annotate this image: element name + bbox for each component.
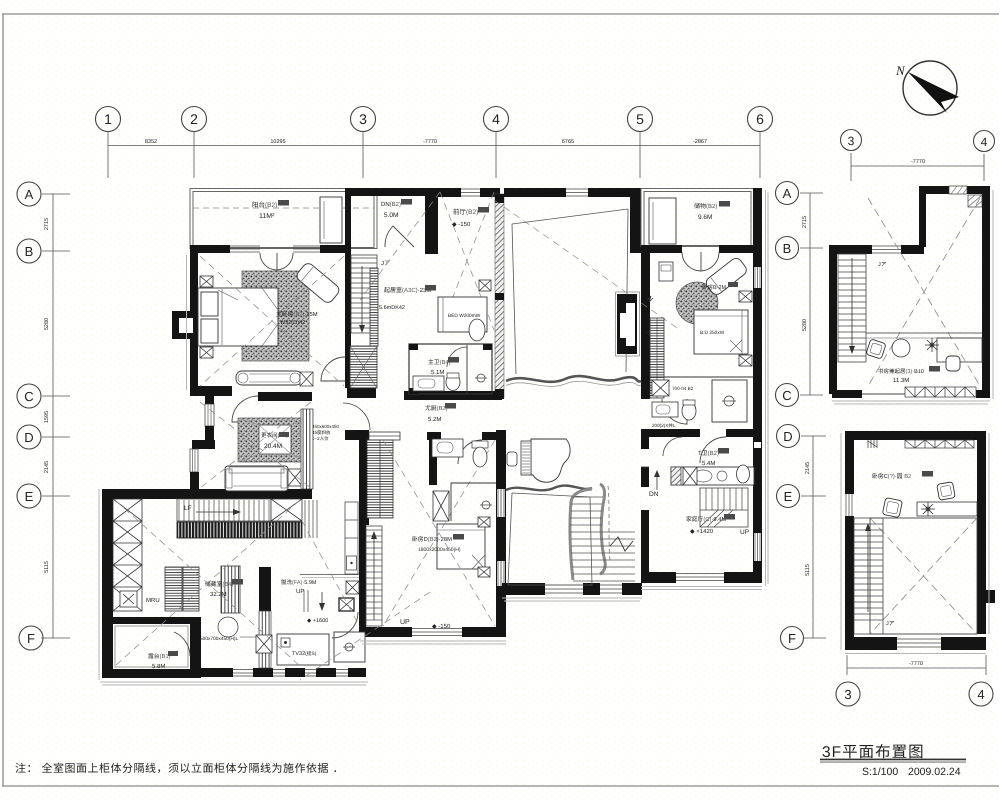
svg-text:-7770: -7770 [423, 139, 437, 145]
svg-text:3: 3 [844, 687, 851, 702]
svg-text:1800x2000x450(H): 1800x2000x450(H) [418, 547, 461, 553]
svg-text:书房兼起居(3)·B10: 书房兼起居(3)·B10 [878, 368, 924, 375]
svg-text:2009.02.24: 2009.02.24 [908, 766, 961, 778]
svg-text:5.4M: 5.4M [702, 460, 715, 467]
svg-text:B: B [25, 244, 34, 259]
svg-text:5.6mDK42: 5.6mDK42 [379, 305, 405, 311]
svg-text:卧房C(?)·园 B2: 卧房C(?)·园 B2 [872, 473, 911, 480]
svg-text:起居室(A3C)·23M: 起居室(A3C)·23M [384, 286, 431, 294]
svg-text:前厅(B2): 前厅(B2) [453, 208, 478, 216]
svg-text:UP: UP [296, 588, 304, 595]
svg-text:TV32(挂S): TV32(挂S) [292, 650, 317, 657]
svg-text:储物(B2): 储物(B2) [694, 202, 717, 210]
svg-text:尤厨(B2): 尤厨(B2) [425, 405, 448, 412]
svg-text:阳台(B2): 阳台(B2) [252, 201, 277, 209]
svg-text:-2867: -2867 [693, 139, 707, 145]
svg-text:5.1M: 5.1M [431, 369, 444, 376]
svg-text:盥洗(FA)·5.9M: 盥洗(FA)·5.9M [281, 579, 317, 586]
svg-text:8352: 8352 [145, 139, 157, 145]
svg-text:露台(B1): 露台(B1) [148, 653, 171, 660]
svg-text:2715: 2715 [802, 216, 808, 228]
svg-text:Jア: Jア [886, 621, 895, 627]
svg-text:1595: 1595 [44, 411, 50, 423]
svg-text:5.0M: 5.0M [384, 212, 398, 219]
svg-text:◆ -150: ◆ -150 [432, 623, 451, 630]
svg-text:9.6M: 9.6M [698, 214, 712, 221]
svg-text:5.8M: 5.8M [152, 663, 165, 670]
svg-text:DN(B2): DN(B2) [381, 201, 401, 208]
svg-text:3: 3 [359, 111, 367, 127]
svg-text:200(2)X井L: 200(2)X井L [652, 423, 676, 428]
svg-text:4: 4 [492, 111, 500, 127]
svg-text:UP: UP [740, 529, 749, 536]
svg-text:C: C [782, 388, 791, 403]
svg-text:E: E [25, 489, 34, 504]
svg-text:2145: 2145 [805, 462, 811, 474]
svg-text:卧房D(B2)·28M: 卧房D(B2)·28M [412, 536, 452, 543]
svg-text:11.3M: 11.3M [893, 377, 909, 384]
svg-text:A: A [25, 187, 34, 202]
svg-text:S:1/100: S:1/100 [862, 766, 898, 778]
svg-text:主卧房(B2)·15M: 主卧房(B2)·15M [276, 311, 318, 318]
svg-text:45度斜放: 45度斜放 [312, 430, 331, 435]
svg-text:◆ +1600: ◆ +1600 [307, 618, 328, 624]
svg-text:-7770: -7770 [911, 159, 925, 165]
svg-text:T卫(B2): T卫(B2) [698, 450, 719, 457]
svg-text:2: 2 [190, 111, 198, 127]
svg-text:6: 6 [756, 111, 764, 127]
svg-text:◆ -150: ◆ -150 [452, 221, 471, 228]
svg-text:5115: 5115 [44, 561, 50, 573]
svg-text:4: 4 [981, 135, 988, 149]
svg-text:5280: 5280 [802, 319, 808, 331]
svg-text:32.2M: 32.2M [210, 591, 227, 598]
svg-text:主卫(B4): 主卫(B4) [428, 359, 451, 366]
svg-text:1: 1 [104, 111, 112, 127]
svg-text:家庭厅(C)·9.4M: 家庭厅(C)·9.4M [686, 516, 726, 523]
svg-text:5: 5 [636, 111, 644, 127]
svg-text:D: D [24, 430, 33, 445]
svg-text:700·04 B2: 700·04 B2 [672, 386, 694, 391]
svg-text:A: A [783, 186, 792, 201]
svg-text:2715: 2715 [44, 218, 50, 230]
svg-text:B:D 250xW: B:D 250xW [700, 330, 725, 336]
svg-text:◆ +1420: ◆ +1420 [690, 528, 714, 535]
svg-text:3F平面布置图: 3F平面布置图 [822, 743, 925, 761]
svg-text:5.2M: 5.2M [428, 416, 441, 423]
svg-text:11M²: 11M² [259, 213, 275, 220]
svg-text:4: 4 [977, 687, 984, 702]
svg-text:E: E [784, 489, 793, 504]
svg-text:W32(D)42: W32(D)42 [280, 320, 305, 326]
svg-text:-7770: -7770 [909, 661, 923, 667]
svg-text:1~2人位: 1~2人位 [312, 436, 329, 441]
svg-text:450x600x450: 450x600x450 [312, 424, 340, 429]
svg-text:3: 3 [848, 134, 855, 148]
svg-text:B: B [783, 241, 792, 256]
svg-text:D: D [783, 429, 792, 444]
svg-text:Jア: Jア [878, 262, 887, 268]
svg-text:2145: 2145 [44, 461, 50, 473]
svg-text:F: F [788, 631, 796, 646]
svg-text:DN: DN [649, 491, 659, 498]
svg-text:20.4M: 20.4M [264, 443, 282, 450]
svg-text:BED W200mW: BED W200mW [448, 313, 481, 319]
svg-text:N: N [895, 63, 906, 78]
svg-text:LF: LF [184, 505, 192, 512]
svg-text:500x700x450(H)L: 500x700x450(H)L [200, 636, 238, 642]
svg-text:F: F [27, 631, 35, 646]
svg-text:MRU: MRU [146, 597, 160, 604]
svg-text:10295: 10295 [270, 139, 285, 145]
svg-text:UP: UP [400, 619, 410, 626]
svg-text:注： 全室图面上柜体分隔线，须以立面柜体分隔线为施作依据: 注： 全室图面上柜体分隔线，须以立面柜体分隔线为施作依据 ． [15, 762, 344, 775]
svg-text:卧房B·2M: 卧房B·2M [702, 284, 727, 291]
svg-text:C: C [24, 389, 33, 404]
svg-text:5280: 5280 [44, 318, 50, 330]
svg-text:5115: 5115 [805, 564, 811, 576]
svg-text:6765: 6765 [562, 139, 574, 145]
